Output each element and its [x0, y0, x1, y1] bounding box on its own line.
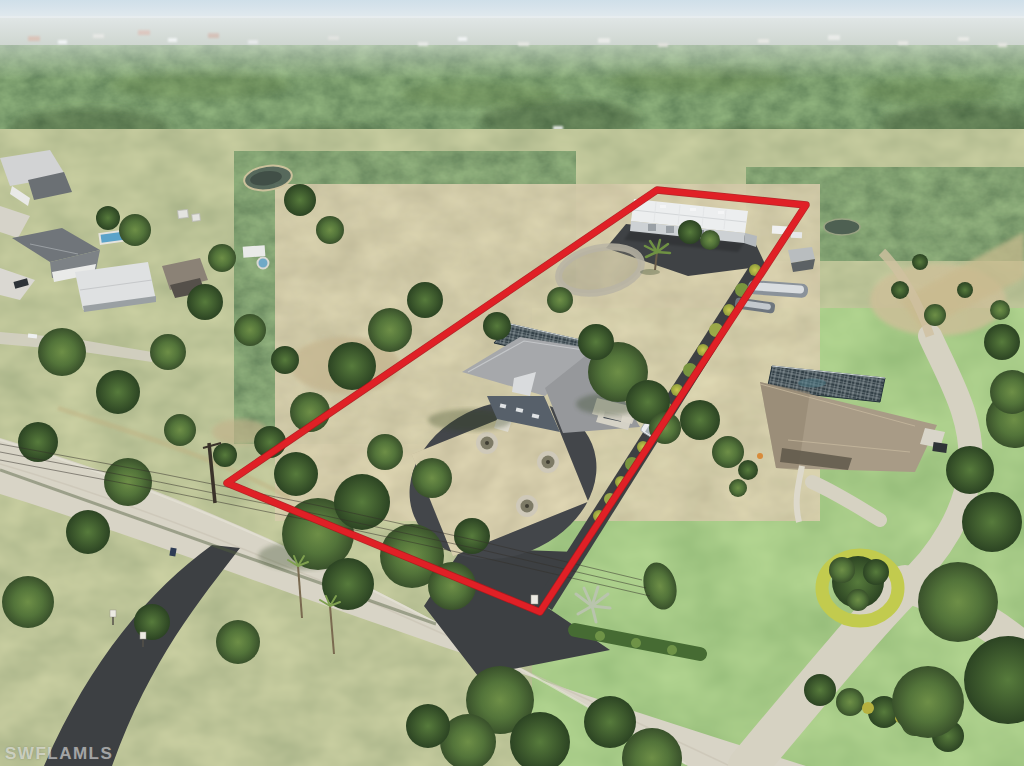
haze-fade: [0, 16, 1024, 80]
pond-right: [824, 219, 860, 235]
aerial-property-photo: SWFLAMLS: [0, 0, 1024, 766]
watermark-text: SWFLAMLS: [5, 744, 113, 764]
